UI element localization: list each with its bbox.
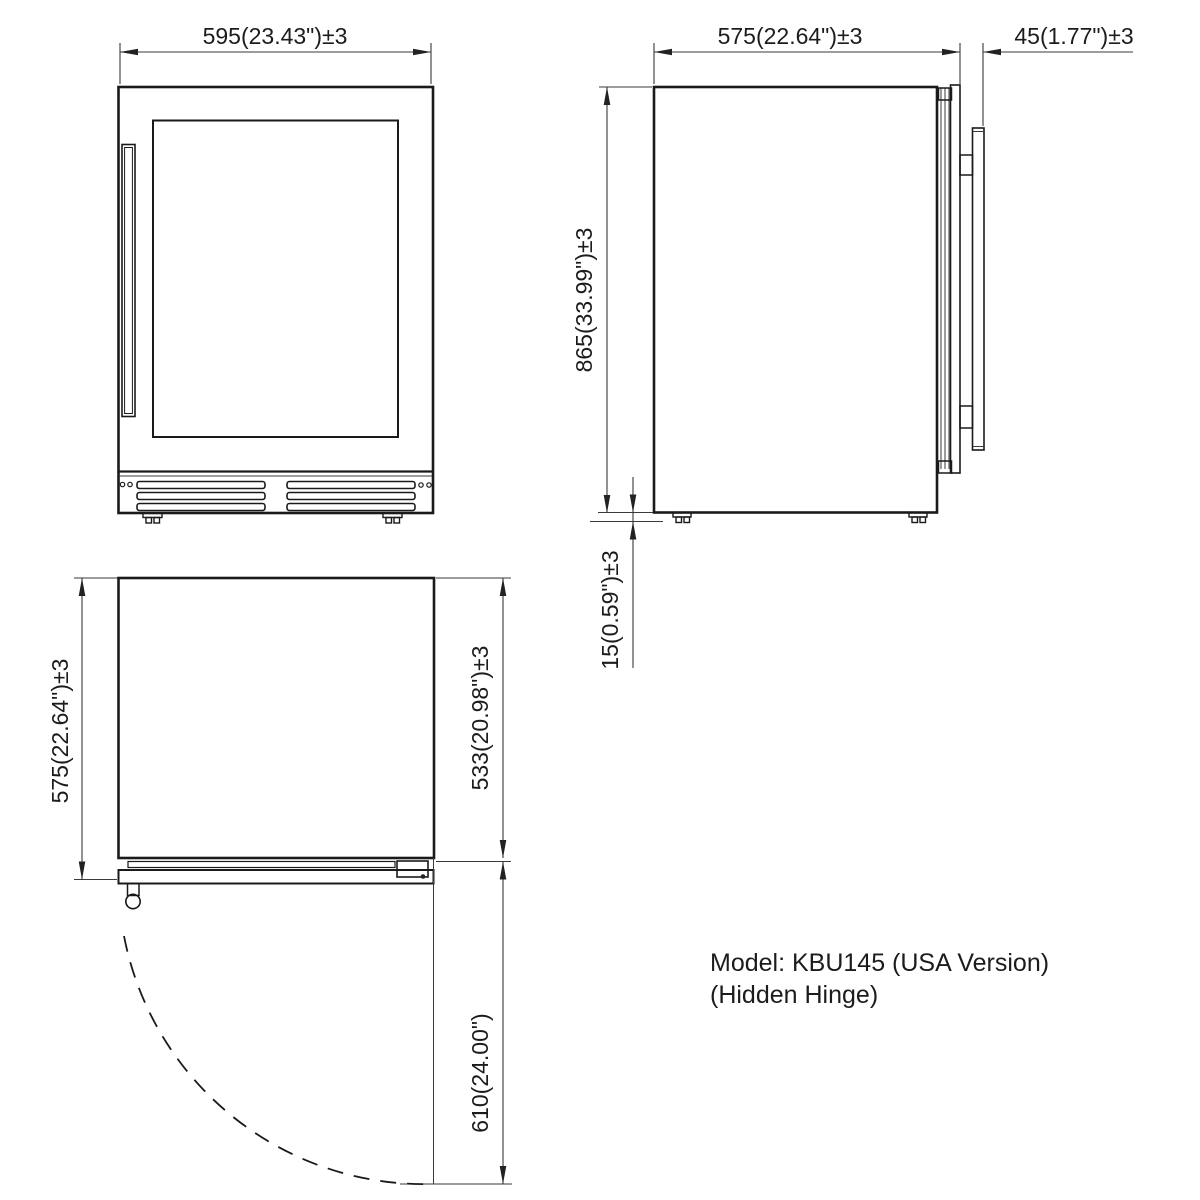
top-body-depth-dimension: 533(20.98")±3 bbox=[436, 578, 511, 858]
model-note: Model: KBU145 (USA Version) (Hidden Hing… bbox=[710, 949, 1049, 1009]
front-feet bbox=[143, 513, 402, 523]
front-door-handle bbox=[122, 145, 135, 417]
vent-screw-icon bbox=[419, 483, 423, 487]
handle-bracket-top bbox=[960, 155, 973, 175]
top-total-depth-dim-label: 575(22.64")±3 bbox=[47, 659, 73, 804]
side-foot-gap-dim-label: 15(0.59")±3 bbox=[597, 550, 623, 669]
side-foot-gap-dimension: 15(0.59")±3 bbox=[590, 477, 663, 670]
side-handle-dim-label: 45(1.77")±3 bbox=[1014, 23, 1133, 49]
vent-screw-icon bbox=[427, 483, 431, 487]
side-depth-dimension: 575(22.64")±3 bbox=[654, 23, 960, 84]
front-width-dimension: 595(23.43")±3 bbox=[120, 23, 431, 84]
door-swing-arc bbox=[124, 936, 434, 1184]
top-body-outline bbox=[119, 578, 435, 858]
top-door-gasket bbox=[128, 862, 395, 868]
vent-screw-icon bbox=[128, 482, 132, 486]
front-vent-grille bbox=[120, 482, 431, 511]
technical-drawing-page: 595(23.43")±3 bbox=[0, 0, 1200, 1200]
side-feet bbox=[673, 513, 927, 523]
top-body-depth-dim-label: 533(20.98")±3 bbox=[467, 646, 493, 791]
front-glass-window bbox=[153, 121, 398, 438]
side-door-panel bbox=[939, 85, 961, 473]
top-door-slab bbox=[119, 870, 434, 884]
handle-bracket-bottom bbox=[960, 406, 973, 428]
model-note-line1: Model: KBU145 (USA Version) bbox=[710, 949, 1049, 977]
side-depth-dim-label: 575(22.64")±3 bbox=[718, 23, 863, 49]
top-door-handle bbox=[126, 884, 140, 909]
side-height-dim-label: 865(33.99")±3 bbox=[571, 228, 597, 373]
top-door-swing-dim-label: 610(24.00") bbox=[467, 1013, 493, 1132]
side-view: 575(22.64")±3 45(1.77")±3 865(33.99")±3 … bbox=[571, 23, 1134, 670]
front-body-outline bbox=[119, 87, 434, 513]
dimension-drawing: 595(23.43")±3 bbox=[0, 0, 1200, 1200]
top-view: 575(22.64")±3 533(20.98")±3 610(24.00") bbox=[47, 578, 512, 1184]
side-height-dimension: 865(33.99")±3 bbox=[571, 87, 652, 513]
front-view: 595(23.43")±3 bbox=[119, 23, 434, 523]
hinge-screw-icon bbox=[421, 874, 426, 879]
top-door-swing-dimension: 610(24.00") bbox=[400, 862, 512, 1185]
front-width-dim-label: 595(23.43")±3 bbox=[203, 23, 348, 49]
side-handle-dimension: 45(1.77")±3 bbox=[983, 23, 1134, 126]
top-total-depth-dimension: 575(22.64")±3 bbox=[47, 578, 118, 880]
side-handle-bar bbox=[960, 128, 984, 450]
side-body-outline bbox=[654, 87, 937, 513]
vent-screw-icon bbox=[120, 482, 124, 486]
model-note-line2: (Hidden Hinge) bbox=[710, 981, 878, 1009]
